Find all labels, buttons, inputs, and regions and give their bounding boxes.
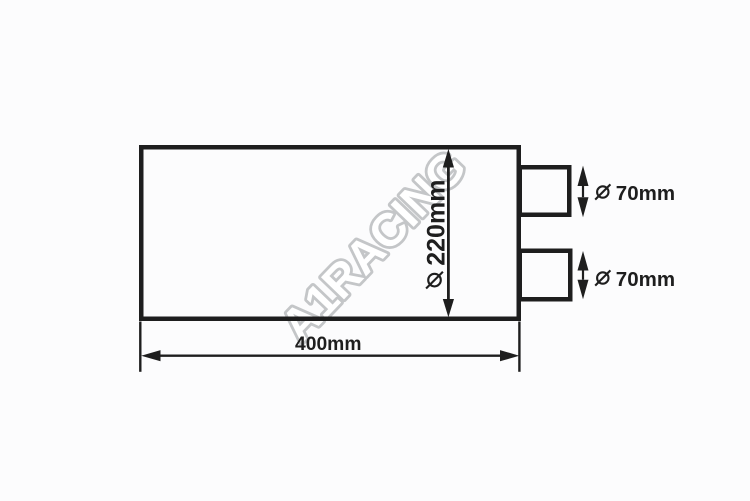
svg-text:70mm: 70mm xyxy=(616,268,675,291)
svg-text:220mm: 220mm xyxy=(423,180,451,266)
svg-text:400mm: 400mm xyxy=(295,334,361,355)
svg-text:70mm: 70mm xyxy=(616,182,675,205)
